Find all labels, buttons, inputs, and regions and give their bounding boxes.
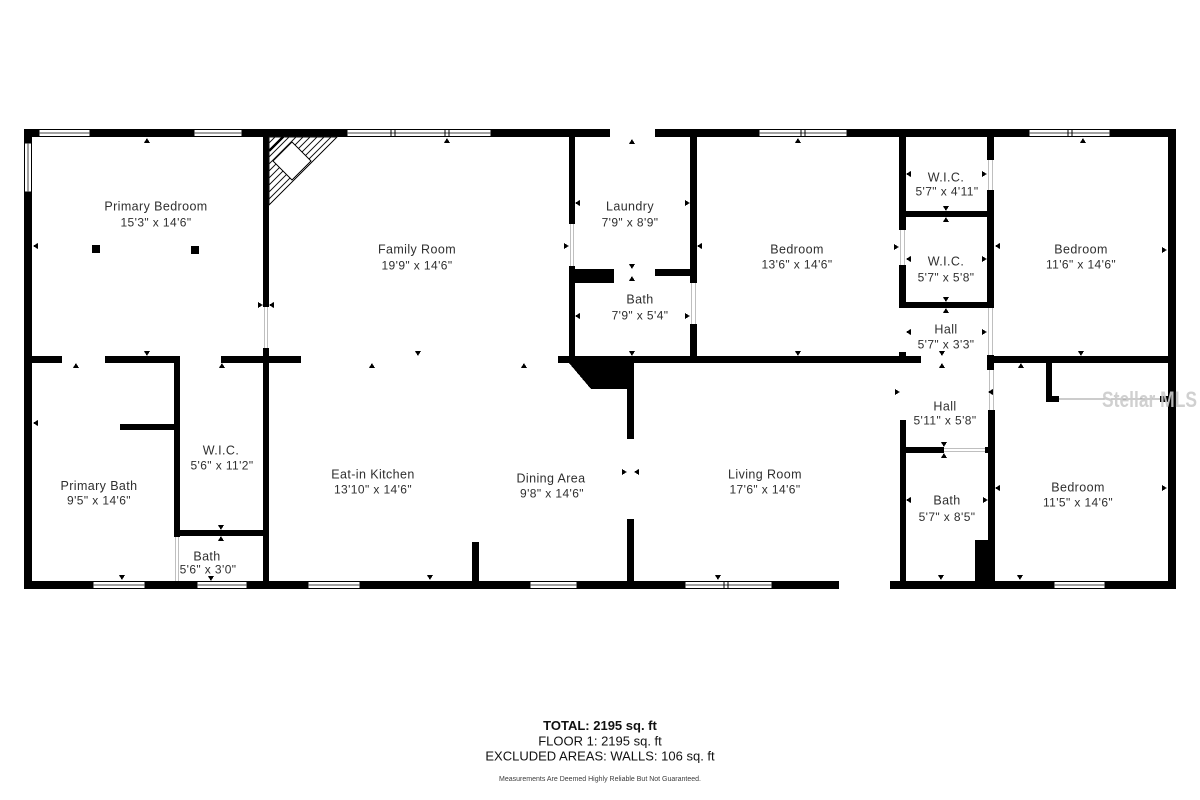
svg-text:13'6" x 14'6": 13'6" x 14'6" [761, 258, 832, 272]
svg-text:Family Room: Family Room [378, 243, 456, 257]
svg-text:Measurements Are Deemed Highly: Measurements Are Deemed Highly Reliable … [499, 776, 701, 783]
svg-text:W.I.C.: W.I.C. [203, 444, 239, 458]
svg-text:9'5" x 14'6": 9'5" x 14'6" [67, 494, 131, 508]
svg-text:5'7" x 4'11": 5'7" x 4'11" [915, 185, 978, 199]
svg-text:Hall: Hall [933, 400, 956, 414]
svg-text:Bath: Bath [626, 293, 653, 307]
svg-text:7'9" x 8'9": 7'9" x 8'9" [602, 216, 659, 230]
svg-text:TOTAL: 2195 sq. ft: TOTAL: 2195 sq. ft [543, 718, 657, 733]
svg-text:Eat-in Kitchen: Eat-in Kitchen [331, 468, 414, 482]
svg-text:Laundry: Laundry [606, 200, 654, 214]
svg-text:Bedroom: Bedroom [770, 243, 824, 257]
svg-text:19'9" x 14'6": 19'9" x 14'6" [381, 259, 452, 273]
svg-text:Bedroom: Bedroom [1054, 243, 1108, 257]
svg-text:Dining Area: Dining Area [516, 472, 585, 486]
svg-text:Primary Bath: Primary Bath [60, 479, 137, 493]
svg-text:Primary Bedroom: Primary Bedroom [104, 200, 207, 214]
svg-text:5'6" x 11'2": 5'6" x 11'2" [190, 459, 253, 473]
svg-text:13'10" x 14'6": 13'10" x 14'6" [334, 483, 412, 497]
svg-text:5'7" x 5'8": 5'7" x 5'8" [918, 271, 975, 285]
svg-text:11'6" x 14'6": 11'6" x 14'6" [1046, 258, 1116, 272]
svg-text:7'9" x 5'4": 7'9" x 5'4" [612, 309, 669, 323]
svg-text:FLOOR 1: 2195 sq. ft: FLOOR 1: 2195 sq. ft [538, 734, 662, 749]
svg-text:9'8" x 14'6": 9'8" x 14'6" [520, 487, 584, 501]
svg-text:Stellar MLS: Stellar MLS [1102, 387, 1197, 412]
svg-text:15'3" x 14'6": 15'3" x 14'6" [120, 216, 191, 230]
svg-text:11'5" x 14'6": 11'5" x 14'6" [1043, 496, 1113, 510]
svg-text:EXCLUDED AREAS: WALLS: 106 sq.: EXCLUDED AREAS: WALLS: 106 sq. ft [485, 749, 715, 764]
svg-text:Bath: Bath [933, 494, 960, 508]
svg-text:5'11" x 5'8": 5'11" x 5'8" [913, 414, 976, 428]
svg-text:W.I.C.: W.I.C. [928, 255, 964, 269]
svg-text:Living Room: Living Room [728, 468, 802, 482]
svg-text:W.I.C.: W.I.C. [928, 171, 964, 185]
svg-text:Bedroom: Bedroom [1051, 481, 1105, 495]
svg-text:5'7" x 3'3": 5'7" x 3'3" [918, 338, 975, 352]
svg-text:17'6" x 14'6": 17'6" x 14'6" [729, 483, 800, 497]
svg-text:Hall: Hall [934, 323, 957, 337]
svg-text:5'6" x 3'0": 5'6" x 3'0" [180, 563, 237, 577]
svg-text:Bath: Bath [193, 550, 220, 564]
svg-text:5'7" x 8'5": 5'7" x 8'5" [919, 510, 976, 524]
